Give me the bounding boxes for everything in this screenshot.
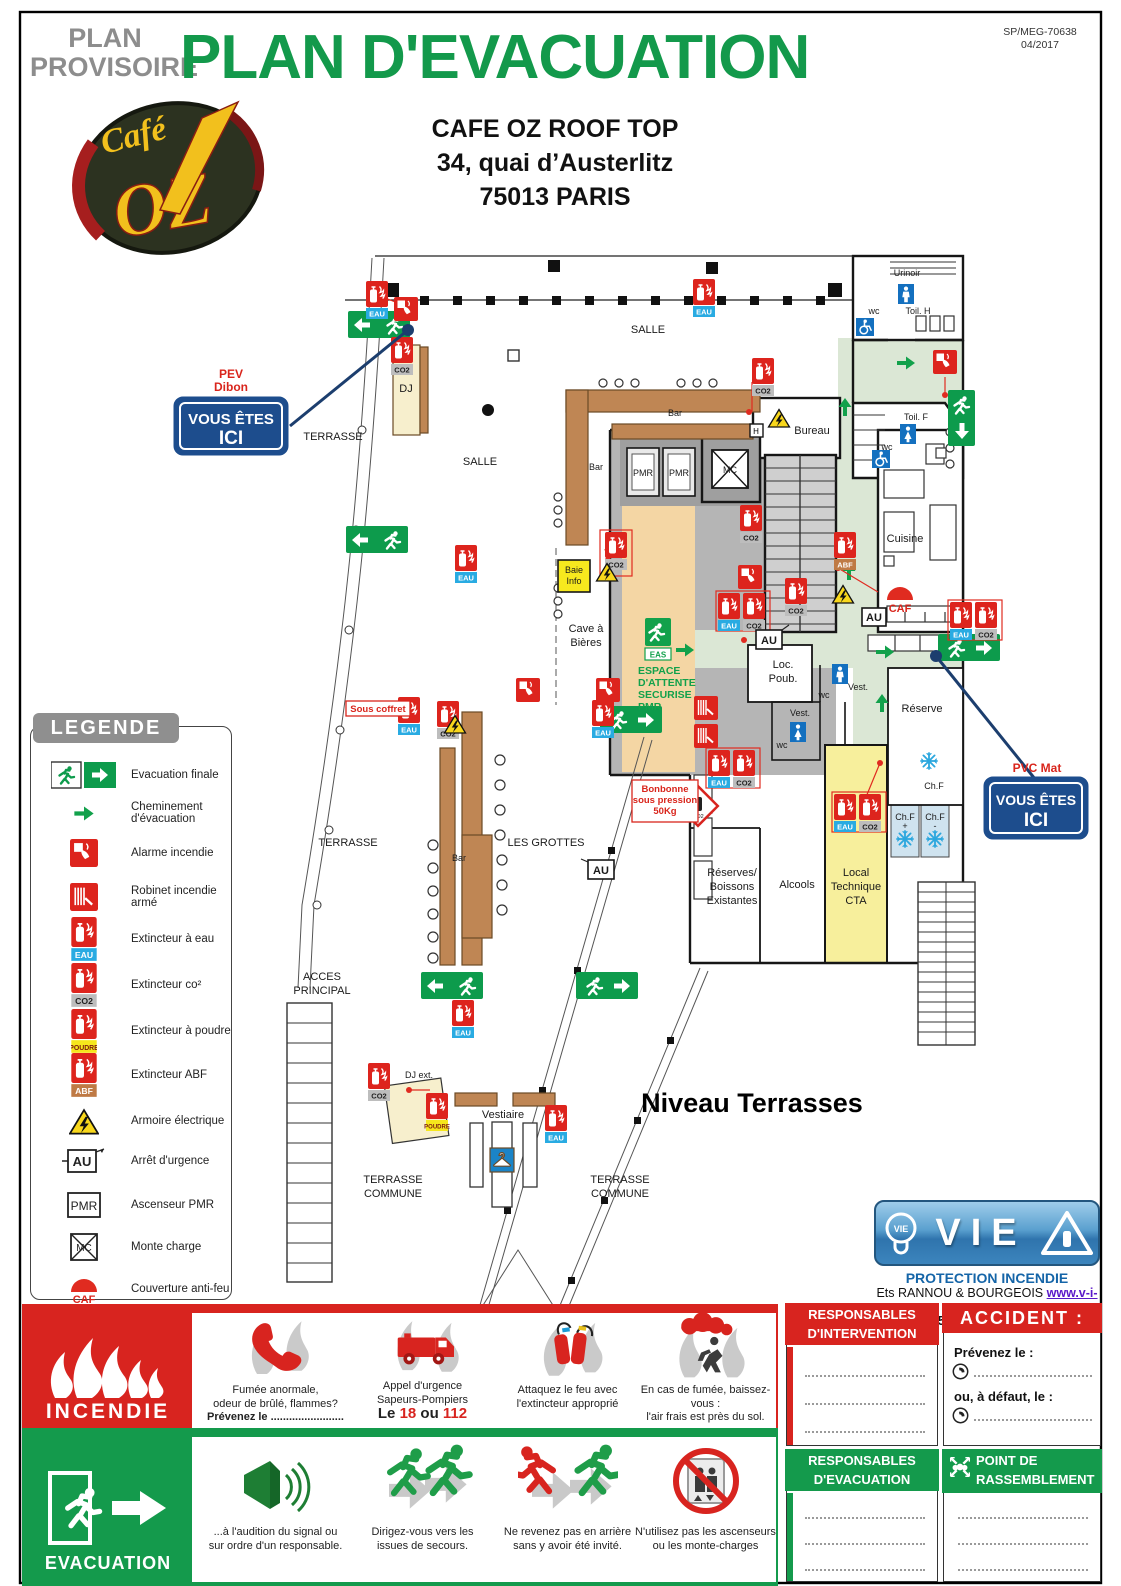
svg-text:EAU: EAU [75, 949, 93, 959]
svg-text:DJ ext.: DJ ext. [405, 1070, 433, 1080]
wheelchair-icon [856, 318, 874, 336]
flames-icon [43, 1330, 173, 1400]
svg-text:EAU: EAU [458, 574, 474, 583]
legend-item-armoire: Armoire électrique [43, 1099, 233, 1139]
svg-text:Bar: Bar [589, 462, 603, 472]
legend-item-ria: Robinet incendie armé [43, 875, 233, 915]
phone-icon [952, 1407, 969, 1424]
legend-item-monte-charge: MC Monte charge [43, 1225, 233, 1265]
svg-text:TERRASSE: TERRASSE [363, 1174, 422, 1186]
eas-icon: EAS [645, 618, 671, 660]
extinguisher-eau-icon: EAU [693, 279, 715, 317]
svg-text:CO2: CO2 [608, 561, 623, 570]
evacuation-instructions-band: EVACUATION ...à l'audition du signal ous… [22, 1428, 778, 1586]
no-elevator-icon [658, 1437, 754, 1521]
you-are-here-badge: VOUS ÊTES ICI [175, 398, 287, 454]
svg-text:EAU: EAU [595, 729, 611, 738]
svg-text:PMR: PMR [638, 701, 662, 713]
svg-text:wc: wc [818, 690, 830, 700]
svg-text:CO2: CO2 [743, 534, 758, 543]
svg-text:COMMUNE: COMMUNE [591, 1188, 649, 1200]
plan-provisoire-label: PLAN PROVISOIRE [30, 24, 180, 82]
legend-item-alarme: Alarme incendie [43, 831, 233, 871]
svg-text:CO2: CO2 [755, 387, 770, 396]
extinguisher-co2-icon: CO2 [740, 505, 762, 543]
pmr-elevator-icon: PMR [43, 1183, 125, 1227]
write-in-line [958, 1517, 1088, 1519]
responsables-evacuation-panel: RESPONSABLESD'EVACUATION [786, 1450, 938, 1582]
legend-item-cheminement: Cheminement d'évacuation [43, 791, 233, 831]
fire-alarm-icon [596, 678, 620, 702]
wheelchair-icon [872, 450, 890, 468]
evacuation-step-1: ...à l'audition du signal ousur ordre d'… [202, 1437, 349, 1582]
svg-text:Local: Local [843, 867, 869, 879]
svg-text:EAS: EAS [650, 651, 667, 660]
svg-text:Sous coffret: Sous coffret [350, 704, 406, 715]
write-in-line [974, 1419, 1092, 1421]
svg-text:Réserves/: Réserves/ [707, 867, 757, 879]
pmr-elevator-label: PMR [669, 468, 690, 478]
accident-panel: ACCIDENT : Prévenez le : ou, à défaut, l… [943, 1304, 1101, 1446]
document-reference: SP/MEG-70638 04/2017 [985, 26, 1095, 52]
exit-sign-icon [421, 972, 483, 999]
svg-text:CAF: CAF [889, 603, 912, 615]
fire-alarm-icon [43, 831, 125, 875]
emergency-stop-icon: AU [43, 1139, 125, 1183]
cafe-oz-logo: Café OZ [52, 88, 292, 268]
fire-alarm-icon [394, 297, 418, 321]
extinguisher-abf-icon: ABF [43, 1053, 125, 1097]
svg-text:AU: AU [593, 865, 609, 877]
extinguisher-eau-icon: EAU [545, 1105, 567, 1143]
svg-text:AU: AU [73, 1154, 92, 1169]
svg-text:ICI: ICI [219, 428, 243, 449]
legend-item-arret-urgence: AU Arrêt d'urgence [43, 1139, 233, 1179]
svg-text:Toil. H: Toil. H [905, 306, 930, 316]
extinguisher-eau-icon: EAU [592, 700, 614, 738]
write-in-line [805, 1517, 925, 1519]
exit-pictogram-icon [38, 1467, 178, 1553]
legend-item-couverture: CAF Couverture anti-feu [43, 1267, 233, 1307]
write-in-line [805, 1431, 925, 1433]
svg-text:PRINCIPAL: PRINCIPAL [293, 985, 350, 997]
svg-text:CO2: CO2 [394, 366, 409, 375]
freight-elevator-icon: MC [43, 1225, 125, 1269]
svg-text:EAU: EAU [548, 1134, 564, 1143]
accent-bar [787, 1347, 793, 1445]
extinguishers-icon [523, 1313, 613, 1379]
point-rassemblement-panel: POINT DERASSEMBLEMENT [943, 1450, 1101, 1582]
svg-text:wc: wc [868, 306, 880, 316]
svg-text:LES GROTTES: LES GROTTES [507, 837, 584, 849]
svg-text:EAU: EAU [401, 726, 417, 735]
extinguisher-abf-icon: ABF [834, 532, 856, 570]
extinguisher-poudre-icon: POUDRE [424, 1093, 450, 1131]
svg-text:Bonbonne: Bonbonne [642, 784, 689, 795]
extinguisher-co2-icon: CO2 [43, 963, 125, 1007]
write-in-line [805, 1543, 925, 1545]
evacuation-path-arrow-icon [43, 791, 125, 835]
svg-text:Urinoir: Urinoir [894, 268, 921, 278]
legend-item-ascenseur-pmr: PMR Ascenseur PMR [43, 1183, 233, 1223]
incendie-step-1: Fumée anormale,odeur de brûlé, flammes?P… [202, 1313, 349, 1432]
legend-item-extincteur-co2: CO2 Extincteur co² [43, 963, 233, 1003]
mens-toilet-icon [898, 284, 914, 304]
svg-text:VOUS ÊTES: VOUS ÊTES [996, 791, 1076, 808]
svg-text:SECURISE: SECURISE [638, 689, 692, 701]
emergency-stop-icon: AU [581, 859, 614, 879]
svg-text:Poub.: Poub. [769, 673, 798, 685]
legend-item-extincteur-eau: EAU Extincteur à eau [43, 917, 233, 957]
smoke-crouch-icon [658, 1313, 754, 1379]
svg-text:PMR: PMR [71, 1199, 98, 1213]
incendie-banner: INCENDIE [24, 1313, 192, 1432]
fire-alarm-icon [933, 350, 957, 374]
svg-text:Dibon: Dibon [214, 380, 248, 394]
exit-sign-icon [948, 390, 975, 446]
svg-text:Alcools: Alcools [779, 879, 815, 891]
svg-text:EAU: EAU [711, 779, 727, 788]
svg-text:Bar: Bar [452, 853, 466, 863]
svg-text:Technique: Technique [831, 881, 881, 893]
assembly-point-icon [948, 1455, 972, 1479]
emergency-stop-icon: AU [862, 608, 886, 626]
svg-text:-: - [934, 821, 937, 831]
svg-text:CO2: CO2 [371, 1092, 386, 1101]
svg-text:EAU: EAU [721, 622, 737, 631]
telephone-icon [231, 1313, 321, 1379]
incendie-step-2: Appel d'urgenceSapeurs-PompiersLe 18 ou … [349, 1313, 496, 1432]
svg-text:ICI: ICI [1024, 810, 1048, 831]
evacuation-banner: EVACUATION [24, 1437, 192, 1582]
snowflake-icon [921, 753, 937, 769]
extinguisher-co2-icon: CO2 [368, 1063, 390, 1101]
fire-truck-icon [378, 1313, 468, 1375]
h-label: H [753, 427, 759, 436]
extinguisher-eau-icon: EAU [43, 917, 125, 961]
accent-bar [787, 1493, 793, 1581]
snowflake-icon [927, 831, 943, 847]
fire-instructions-band: INCENDIE Fumée anormale,odeur de brûlé, … [22, 1304, 778, 1434]
panel-header: RESPONSABLESD'EVACUATION [785, 1449, 939, 1491]
evacuation-step-2: Dirigez-vous vers lesissues de secours. [349, 1437, 496, 1582]
incendie-step-3: Attaquez le feu avecl'extincteur appropr… [494, 1313, 641, 1432]
svg-text:CO2: CO2 [862, 823, 877, 832]
legend-item-extincteur-abf: ABF Extincteur ABF [43, 1053, 233, 1093]
svg-text:TERRASSE: TERRASSE [318, 837, 377, 849]
vie-triangle-icon [1041, 1209, 1093, 1257]
evacuation-step-4: N'utilisez pas les ascenseursou les mont… [632, 1437, 779, 1582]
fire-alarm-icon [516, 678, 540, 702]
svg-text:SALLE: SALLE [463, 456, 497, 468]
svg-text:Loc.: Loc. [773, 659, 794, 671]
svg-text:Cuisine: Cuisine [887, 533, 924, 545]
svg-text:D'ATTENTE: D'ATTENTE [638, 677, 696, 689]
svg-text:POUDRE: POUDRE [424, 1125, 450, 1131]
svg-text:ABF: ABF [837, 561, 853, 570]
svg-text:CAF: CAF [73, 1294, 96, 1304]
page-title: PLAN D'EVACUATION [180, 22, 809, 93]
extinguisher-eau-icon: EAU [452, 1000, 474, 1038]
write-in-line [805, 1403, 925, 1405]
electrical-warning-icon [43, 1099, 125, 1143]
phone-icon [952, 1363, 969, 1380]
freight-elevator-icon: MC [712, 450, 748, 488]
fire-hose-icon [43, 875, 125, 919]
walkers-green-icon [373, 1437, 473, 1521]
svg-text:Existantes: Existantes [707, 895, 758, 907]
fire-hose-icon [694, 724, 718, 748]
extinguisher-co2-icon: CO2 [785, 578, 807, 616]
womens-toilet-icon [790, 722, 806, 742]
svg-text:VOUS ÊTES: VOUS ÊTES [188, 410, 274, 428]
vie-padlock-icon: VIE [881, 1210, 921, 1256]
svg-text:EAU: EAU [455, 1029, 471, 1038]
svg-text:PVC Mat: PVC Mat [1013, 761, 1062, 775]
svg-text:+: + [902, 821, 907, 831]
svg-text:VIE: VIE [894, 1224, 909, 1234]
svg-text:Bureau: Bureau [794, 425, 829, 437]
panel-header: RESPONSABLESD'INTERVENTION [785, 1303, 939, 1345]
svg-text:TERRASSE: TERRASSE [303, 431, 362, 443]
write-in-line [958, 1543, 1088, 1545]
write-in-line [974, 1375, 1092, 1377]
svg-text:COMMUNE: COMMUNE [364, 1188, 422, 1200]
svg-text:PEV: PEV [219, 367, 243, 381]
svg-text:Vest.: Vest. [790, 708, 810, 718]
svg-text:MC: MC [76, 1243, 92, 1254]
svg-text:Bar: Bar [668, 408, 682, 418]
svg-text:wc: wc [776, 740, 788, 750]
exit-sign-icon [576, 972, 638, 999]
evacuation-step-3: Ne revenez pas en arrièresans y avoir ét… [494, 1437, 641, 1582]
svg-text:CO2: CO2 [788, 607, 803, 616]
svg-text:Vest.: Vest. [848, 682, 868, 692]
panel-header: ACCIDENT : [942, 1303, 1102, 1333]
write-in-line [805, 1375, 925, 1377]
svg-text:EAU: EAU [696, 308, 712, 317]
womens-toilet-icon [900, 424, 916, 444]
extinguisher-eau-icon: EAU [455, 545, 477, 583]
svg-text:ABF: ABF [75, 1085, 93, 1095]
responsables-intervention-panel: RESPONSABLESD'INTERVENTION [786, 1304, 938, 1446]
svg-text:CTA: CTA [845, 895, 867, 907]
svg-text:Info: Info [566, 576, 581, 586]
svg-text:AU: AU [866, 612, 882, 624]
svg-text:ESPACE: ESPACE [638, 665, 680, 677]
svg-text:EAU: EAU [837, 823, 853, 832]
write-in-line [958, 1569, 1088, 1571]
incendie-step-4: En cas de fumée, baissez-vous :l'air fra… [632, 1313, 779, 1432]
svg-text:50Kg: 50Kg [653, 806, 676, 817]
svg-text:wc: wc [881, 442, 893, 452]
svg-text:Cave à: Cave à [569, 623, 605, 635]
svg-text:AU: AU [761, 635, 777, 647]
svg-text:CO2: CO2 [746, 622, 761, 631]
svg-text:POUDRE: POUDRE [71, 1044, 97, 1051]
extinguisher-poudre-icon: POUDRE [43, 1009, 125, 1053]
extinguisher-eau-icon: EAU [366, 281, 388, 319]
baie-info-box: BaieInfo [558, 560, 590, 592]
venue-address: CAFE OZ ROOF TOP 34, quai d’Austerlitz 7… [330, 112, 780, 214]
vie-tagline: PROTECTION INCENDIE [874, 1270, 1100, 1286]
svg-text:Réserve: Réserve [902, 703, 943, 715]
write-in-line [805, 1569, 925, 1571]
svg-text:Baie: Baie [565, 565, 583, 575]
svg-text:SALLE: SALLE [631, 324, 665, 336]
svg-text:ACCES: ACCES [303, 971, 341, 983]
snowflake-icon [897, 831, 913, 847]
vie-logo: VIE VIE [874, 1200, 1100, 1266]
svg-text:sous pression: sous pression [633, 795, 698, 806]
evacuation-plan-page: PMR PMR MC H [0, 0, 1121, 1586]
svg-text:DJ: DJ [399, 383, 412, 395]
extinguisher-co2-icon: CO2 [752, 358, 774, 396]
panel-header: POINT DERASSEMBLEMENT [942, 1449, 1102, 1493]
svg-text:CO2: CO2 [736, 779, 751, 788]
svg-text:Bières: Bières [570, 637, 602, 649]
svg-text:Toil. F: Toil. F [904, 412, 929, 422]
legend-title: LEGENDE [33, 713, 179, 743]
sous-coffret-label: Sous coffret [346, 701, 410, 716]
walkers-red-green-icon [518, 1437, 618, 1521]
mens-toilet-icon [832, 664, 848, 684]
exit-sign-icon [346, 526, 408, 553]
svg-text:CO2: CO2 [75, 995, 93, 1005]
svg-text:Vestiaire: Vestiaire [482, 1109, 524, 1121]
legend-item-extincteur-poudre: POUDRE Extincteur à poudre [43, 1009, 233, 1049]
svg-text:CO2: CO2 [978, 631, 993, 640]
svg-text:TERRASSE: TERRASSE [590, 1174, 649, 1186]
speaker-icon [230, 1437, 322, 1521]
svg-text:Boissons: Boissons [710, 881, 755, 893]
svg-text:EAU: EAU [369, 310, 385, 319]
you-are-here-badge: VOUS ÊTES ICI [985, 778, 1087, 838]
defaut-label: ou, à défaut, le : [954, 1389, 1053, 1404]
svg-text:Ch.F: Ch.F [924, 781, 944, 791]
extinguisher-co2-icon: CO2 [605, 532, 627, 570]
fire-hose-icon [694, 696, 718, 720]
prevenez-label: Prévenez le : [954, 1345, 1034, 1360]
fire-alarm-icon [738, 565, 762, 589]
svg-text:EAU: EAU [953, 631, 969, 640]
svg-text:MC: MC [723, 465, 737, 475]
bonbonne-label: Bonbonnesous pression50Kg [632, 780, 698, 822]
pmr-elevator-label: PMR [633, 468, 654, 478]
legend-item-evacuation-finale: Evacuation finale [43, 753, 233, 793]
legend-panel: LEGENDE Evacuation finale Cheminement d'… [30, 726, 232, 1300]
level-title: Niveau Terrasses [641, 1088, 863, 1118]
